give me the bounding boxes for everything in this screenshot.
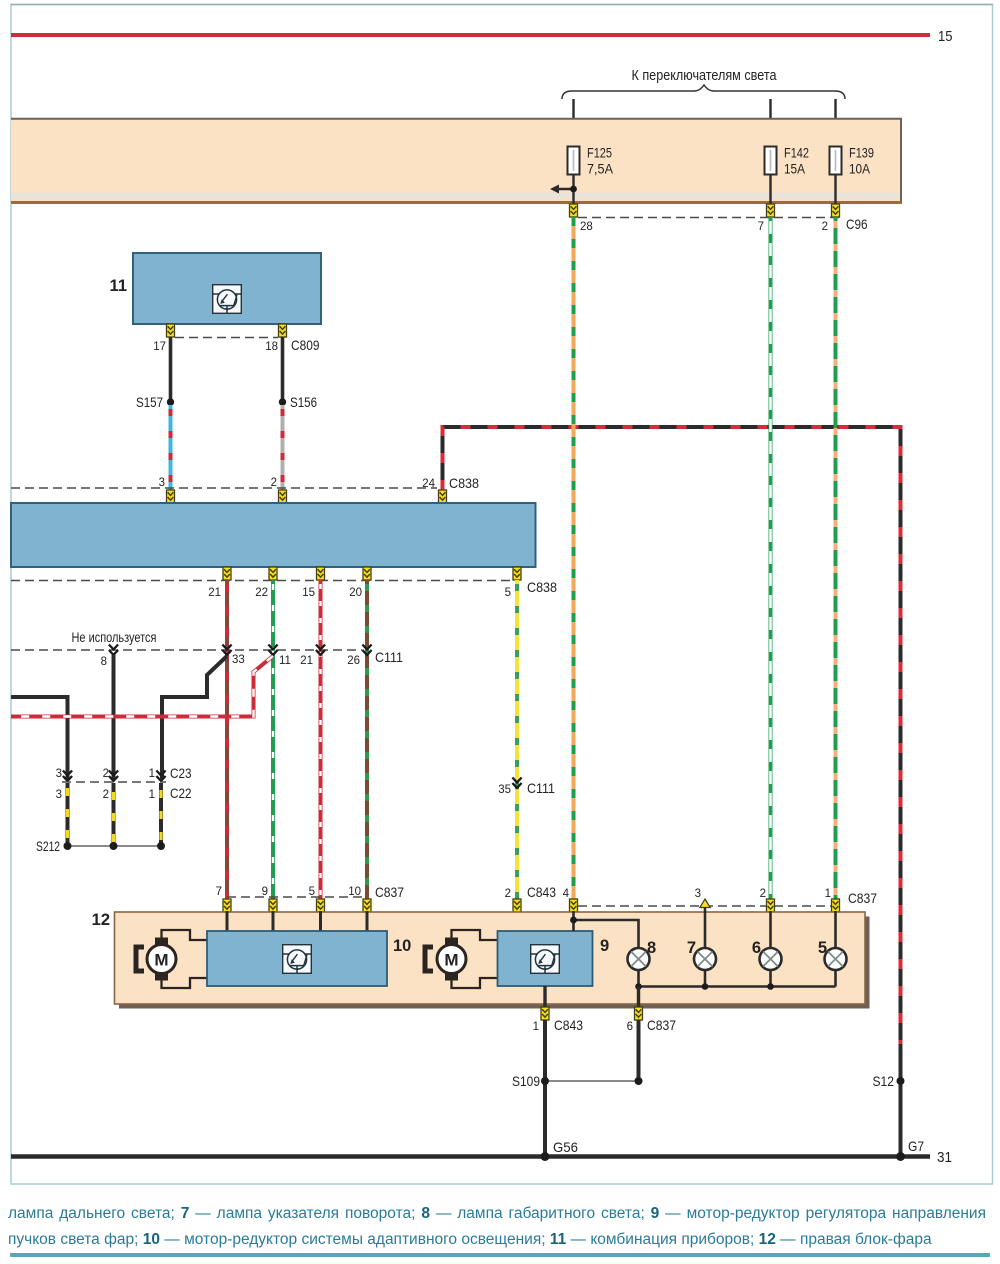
svg-text:3: 3 [56,789,62,801]
svg-text:7: 7 [687,939,696,957]
svg-text:6: 6 [627,1021,633,1033]
svg-text:10: 10 [348,886,361,898]
svg-text:10A: 10A [849,162,870,177]
svg-text:S109: S109 [512,1073,540,1089]
svg-text:22: 22 [255,587,268,599]
svg-text:5: 5 [309,886,315,898]
svg-text:4: 4 [563,888,570,900]
svg-text:33: 33 [232,654,245,666]
svg-text:10: 10 [393,937,411,955]
svg-text:26: 26 [347,655,360,667]
svg-text:М: М [444,951,458,970]
svg-text:3: 3 [695,888,701,900]
svg-text:2: 2 [505,888,511,900]
svg-text:18: 18 [265,341,278,353]
svg-text:2: 2 [103,768,109,780]
svg-text:G56: G56 [553,1139,578,1155]
svg-text:C111: C111 [375,649,403,665]
svg-text:9: 9 [262,886,268,898]
svg-text:S156: S156 [290,394,317,410]
svg-text:7: 7 [758,221,764,233]
svg-text:3: 3 [159,477,165,489]
svg-text:28: 28 [580,221,593,233]
svg-text:C837: C837 [647,1017,676,1033]
svg-text:S12: S12 [873,1073,895,1089]
svg-text:C111: C111 [527,780,555,796]
svg-text:15: 15 [302,587,315,599]
svg-text:3: 3 [56,768,62,780]
svg-text:1: 1 [825,888,831,900]
svg-text:8: 8 [647,939,656,957]
svg-text:1: 1 [149,768,155,780]
svg-text:C838: C838 [449,475,479,491]
svg-text:21: 21 [208,587,221,599]
svg-text:11: 11 [110,277,127,295]
svg-text:9: 9 [600,937,609,955]
svg-text:20: 20 [349,587,362,599]
svg-text:C837: C837 [848,890,877,906]
svg-text:C22: C22 [170,785,192,801]
svg-text:S212: S212 [36,838,60,854]
svg-text:2: 2 [271,477,277,489]
svg-text:5: 5 [505,587,511,599]
svg-text:C96: C96 [846,216,868,232]
svg-text:1: 1 [149,789,155,801]
svg-text:S157: S157 [136,394,163,410]
svg-text:2: 2 [822,221,828,233]
svg-text:5: 5 [818,939,827,957]
svg-text:F125: F125 [587,146,612,161]
svg-text:1: 1 [533,1021,539,1033]
svg-text:C838: C838 [527,579,557,595]
svg-text:24: 24 [422,478,435,490]
svg-text:F142: F142 [784,146,809,161]
svg-text:12: 12 [92,911,110,929]
svg-text:C843: C843 [554,1017,583,1033]
svg-text:F139: F139 [849,146,874,161]
svg-text:C23: C23 [170,765,192,781]
svg-text:7: 7 [216,886,222,898]
svg-text:2: 2 [760,888,766,900]
svg-text:2: 2 [103,789,109,801]
svg-text:21: 21 [300,655,313,667]
svg-text:6: 6 [752,939,761,957]
svg-text:М: М [154,951,168,970]
svg-text:15A: 15A [784,162,805,177]
svg-text:7,5A: 7,5A [587,162,613,177]
svg-text:15: 15 [938,29,953,45]
svg-text:К переключателям света: К переключателям света [632,67,778,84]
svg-text:C837: C837 [375,884,404,900]
svg-text:C809: C809 [291,337,320,353]
svg-text:C843: C843 [527,884,556,900]
svg-text:31: 31 [937,1150,952,1166]
svg-text:G7: G7 [908,1138,924,1154]
svg-text:35: 35 [498,784,511,796]
svg-text:17: 17 [153,341,166,353]
svg-text:8: 8 [101,656,107,668]
svg-text:11: 11 [279,655,291,667]
svg-text:Не используется: Не используется [72,630,157,645]
